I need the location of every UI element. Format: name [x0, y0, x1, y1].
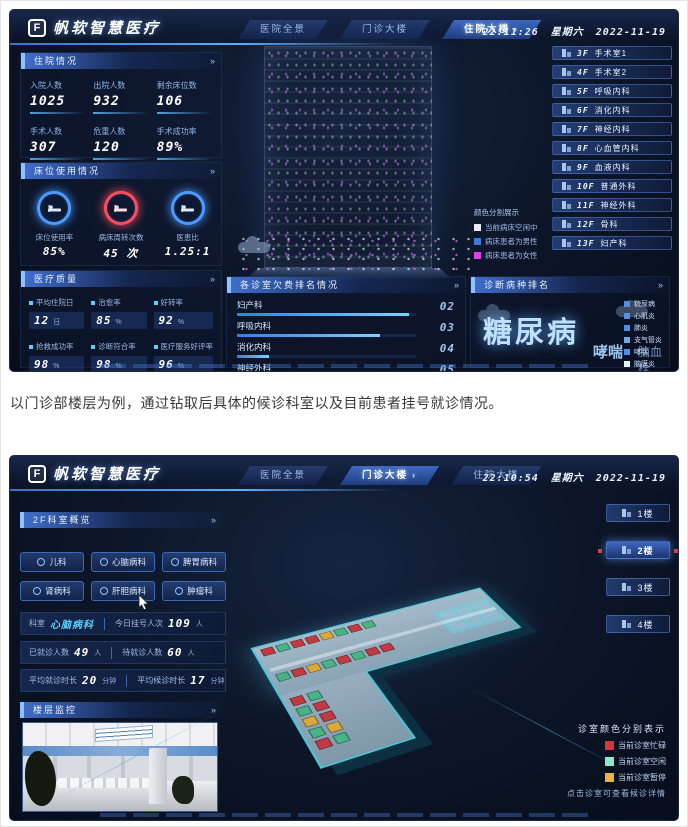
stat-label: 治愈率: [98, 297, 121, 308]
floor-button-11f[interactable]: 11F神经外科: [552, 198, 672, 212]
legend-label: 当前诊室忙碌: [618, 740, 666, 751]
floor-button-1[interactable]: 1楼: [606, 504, 670, 522]
stat-value: 17: [190, 674, 205, 687]
panel-title-text: 诊断病种排名: [484, 280, 550, 290]
legend-label: 心肌炎: [634, 311, 655, 321]
fanruan-logo-icon: F: [28, 19, 46, 37]
room-cell[interactable]: [290, 667, 307, 678]
stat-label: 平均就诊时长: [29, 675, 77, 686]
panel-title-text: 住院情况: [34, 56, 78, 66]
floor-num: 3F: [577, 49, 589, 58]
floor-map[interactable]: [252, 522, 582, 788]
stat-row-visits: 已就诊人数 49 人 待就诊人数 60 人: [20, 641, 226, 664]
rank-number: 03: [440, 321, 455, 334]
stat-card: 出院人数932: [93, 80, 148, 114]
gauge-label: 床位使用率: [21, 232, 87, 243]
dept-label: 呼吸内科: [237, 320, 455, 332]
legend-title: 颜色分割展示: [474, 207, 560, 218]
floor-name: 神经外科: [600, 200, 636, 211]
legend-swatch: [605, 773, 614, 782]
legend-swatch: [624, 301, 630, 307]
floor-plan-wing-main: [250, 587, 521, 697]
arrears-rows: 妇产科02 呼吸内科03 消化内科04 神经外科05: [227, 293, 465, 372]
floor-num: 6F: [577, 106, 589, 115]
dept-button-label: 肿瘤科: [187, 585, 213, 597]
floor-name: 消化内科: [595, 105, 631, 116]
building-icon: [562, 182, 571, 190]
room-grid: [289, 690, 351, 750]
stat-label: 剩余床位数: [157, 80, 212, 91]
dept-button-label: 心脑病科: [112, 556, 146, 568]
stat-value: 12: [34, 314, 49, 327]
panel-title: 各诊室欠费排名情况»: [227, 277, 465, 293]
panel-title: 医疗质量»: [21, 271, 221, 287]
legend-label: 当前病床空闲中: [485, 222, 538, 233]
legend-item: 病床患者为男性: [474, 236, 560, 247]
stat-value: 89%: [157, 140, 212, 155]
room-cell[interactable]: [319, 710, 337, 722]
panel-title-text: 2F科室概览: [33, 515, 92, 525]
arrears-row[interactable]: 妇产科02: [237, 299, 455, 318]
stat-value: 60: [167, 646, 182, 659]
dept-button-cardio-cerebral[interactable]: 心脑病科: [91, 552, 155, 572]
stat-unit: 人: [196, 619, 203, 629]
stat-value: 85: [96, 314, 111, 327]
legend-item: 糖尿病: [624, 299, 662, 309]
dept-label: 妇产科: [237, 299, 455, 311]
stat-unit: 分钟: [211, 676, 225, 686]
room-cell[interactable]: [361, 620, 377, 629]
quality-stat: 平均住院日12日: [29, 297, 84, 329]
floor-label: 4楼: [637, 618, 653, 631]
floor-name: 血液内科: [595, 162, 631, 173]
dept-icon: [33, 587, 41, 595]
dept-button-label: 肾病科: [45, 585, 71, 597]
dept-icon: [100, 558, 108, 566]
dept-icon: [171, 558, 179, 566]
floor-button-12f[interactable]: 12F骨科: [552, 217, 672, 231]
floor-button-9f[interactable]: 9F血液内科: [552, 160, 672, 174]
arrears-row[interactable]: 消化内科04: [237, 341, 455, 360]
room-cell[interactable]: [320, 659, 337, 669]
room-cell[interactable]: [260, 646, 276, 656]
legend-title: 诊室颜色分别表示: [542, 722, 666, 735]
building-icon: [562, 49, 571, 57]
room-cell[interactable]: [308, 726, 327, 739]
room-cell[interactable]: [275, 671, 292, 682]
legend-label: 病床患者为女性: [485, 250, 538, 261]
stat-label: 医疗服务好评率: [161, 341, 214, 352]
floor-button-2[interactable]: 2楼: [606, 541, 670, 559]
gauge-label: 病床周转次数: [88, 232, 154, 243]
building-crowd-dots: [236, 234, 474, 274]
divider: [126, 675, 127, 687]
legend-label: 病床患者为男性: [485, 236, 538, 247]
gauge-ring: [171, 191, 205, 225]
bullet-icon: [91, 345, 95, 349]
building-icon: [562, 220, 571, 228]
bed-icon: [114, 204, 127, 213]
tab-label: 门诊大楼: [362, 470, 408, 481]
floor-name: 呼吸内科: [595, 86, 631, 97]
stat-label: 好转率: [161, 297, 184, 308]
alert-dot: [598, 549, 602, 553]
rank-number: 04: [440, 342, 455, 355]
legend-label: 当前诊室空闲: [618, 756, 666, 767]
panel-arrow-icon: »: [454, 277, 459, 293]
room-cell[interactable]: [304, 635, 320, 645]
room-cell[interactable]: [379, 643, 396, 653]
bullet-icon: [154, 301, 158, 305]
legend-hint: 点击诊室可查看候诊详情: [542, 788, 666, 799]
legend-item: 哮喘: [624, 347, 662, 357]
gauge-ring: [104, 191, 138, 225]
legend-swatch: [624, 313, 630, 319]
stat-label: 诊断符合率: [98, 341, 136, 352]
building-icon: [562, 68, 571, 76]
department-buttons: 儿科 心脑病科 脾胃病科 肾病科 肝胆病科 肿瘤科: [20, 552, 226, 601]
stat-card: 手术人数307: [30, 126, 85, 160]
dept-button-pediatrics[interactable]: 儿科: [20, 552, 84, 572]
room-cell[interactable]: [289, 695, 307, 707]
stat-card: 剩余床位数106: [157, 80, 212, 114]
building-icon: [562, 144, 571, 152]
floor-button-3f[interactable]: 3F手术室1: [552, 46, 672, 60]
stat-card: 危重人数120: [93, 126, 148, 160]
divider: [104, 618, 105, 630]
room-cell[interactable]: [335, 655, 352, 665]
fanruan-logo-icon: F: [28, 465, 46, 483]
dept-button-nephrology[interactable]: 肾病科: [20, 581, 84, 601]
tab-outpatient-building[interactable]: 门诊大楼: [340, 20, 430, 39]
floor-monitor-video[interactable]: [22, 722, 218, 812]
app-title: 帆软智慧医疗: [53, 17, 161, 38]
app-logo: F 帆软智慧医疗: [28, 17, 161, 38]
stat-value: 92: [159, 314, 174, 327]
rank-bar: [237, 334, 416, 337]
panel-title: 住院情况»: [21, 53, 221, 69]
bed-icon: [181, 204, 194, 213]
panel-title-text: 楼层监控: [33, 705, 77, 715]
chevron-right-icon: ›: [412, 470, 417, 481]
legend-label: 支气管炎: [634, 335, 662, 345]
floor-name: 心血管内科: [595, 143, 640, 154]
disease-word-large[interactable]: 糖尿病: [483, 309, 579, 351]
panel-arrow-icon: »: [211, 512, 216, 528]
room-cell[interactable]: [290, 639, 306, 649]
floor-num: 8F: [577, 144, 589, 153]
stat-value: 109: [168, 617, 191, 630]
clock-date: 2022-11-19: [596, 473, 666, 484]
stat-value: 20: [82, 674, 97, 687]
floor-num: 9F: [577, 163, 589, 172]
alert-dot: [674, 549, 678, 553]
stat-unit: %: [178, 319, 184, 326]
cloud-icon: [238, 242, 270, 253]
legend-swatch: [624, 361, 630, 367]
floor-button-4[interactable]: 4楼: [606, 615, 670, 633]
panel-arrow-icon: »: [210, 53, 215, 69]
dept-icon: [100, 587, 108, 595]
stat-label: 今日挂号人次: [115, 618, 163, 629]
panel-inpatient-status: 住院情况» 入院人数1025 出院人数932 剩余床位数106 手术人数307 …: [20, 52, 222, 158]
building-icon: [622, 509, 631, 517]
legend-label: 糖尿病: [634, 299, 655, 309]
floor-name: 神经内科: [595, 124, 631, 135]
room-cell[interactable]: [325, 721, 343, 733]
bullet-icon: [29, 345, 33, 349]
stat-label: 已就诊人数: [29, 647, 69, 658]
legend-item: 病床患者为女性: [474, 250, 560, 261]
app-logo: F 帆软智慧医疗: [28, 463, 161, 484]
dept-button-label: 儿科: [49, 556, 66, 568]
gauge-value: 1.25:1: [155, 245, 221, 258]
stat-unit: %: [116, 319, 122, 326]
building-icon: [562, 201, 571, 209]
stat-cards: 入院人数1025 出院人数932 剩余床位数106 手术人数307 危重人数12…: [21, 69, 221, 160]
stat-label: 危重人数: [93, 126, 148, 137]
building-icon: [622, 620, 631, 628]
legend-item: 肺炎: [624, 323, 662, 333]
room-cell[interactable]: [275, 643, 291, 653]
floor-list: 3F手术室1 4F手术室2 5F呼吸内科 6F消化内科 7F神经内科 8F心血管…: [552, 46, 672, 250]
stat-row-dept: 科室 心脑病科 今日挂号人次 109 人: [20, 612, 226, 635]
gauge-label: 医患比: [155, 232, 221, 243]
panel-title: 床位使用情况»: [21, 163, 221, 179]
stat-unit: 分钟: [102, 676, 116, 686]
stat-label: 待就诊人数: [122, 647, 162, 658]
room-cell[interactable]: [314, 737, 333, 750]
stat-unit: 人: [188, 648, 195, 658]
clock-week: 星期六: [551, 23, 584, 38]
gauge-ring: [37, 191, 71, 225]
app-title: 帆软智慧医疗: [53, 463, 161, 484]
building-icon: [562, 163, 571, 171]
panel-medical-quality: 医疗质量» 平均住院日12日 治愈率85% 好转率92% 抢救成功率98% 诊断…: [20, 270, 222, 368]
dept-button-oncology[interactable]: 肿瘤科: [162, 581, 226, 601]
floor-button-7f[interactable]: 7F神经内科: [552, 122, 672, 136]
floor-num: 4F: [577, 68, 589, 77]
stat-label: 手术成功率: [157, 126, 212, 137]
tab-hospital-overview[interactable]: 医院全景: [238, 466, 328, 485]
quality-stat: 治愈率85%: [91, 297, 146, 329]
building-icon: [562, 125, 571, 133]
floor-name: 普通外科: [600, 181, 636, 192]
service-rooms-block: [434, 599, 506, 634]
building-icon: [562, 87, 571, 95]
dept-icon: [175, 587, 183, 595]
bullet-icon: [29, 301, 33, 305]
bed-color-legend: 颜色分割展示 当前病床空闲中 病床患者为男性 病床患者为女性: [474, 207, 560, 264]
panel-title-text: 医疗质量: [34, 274, 78, 284]
bullet-icon: [91, 301, 95, 305]
gauge-row: 床位使用率 85% 病床周转次数 45 次 医患比 1.25:1: [21, 179, 221, 261]
clock-week: 星期六: [551, 469, 584, 484]
stat-label: 手术人数: [30, 126, 85, 137]
stat-unit: 日: [53, 317, 60, 327]
stat-label: 抢救成功率: [36, 341, 74, 352]
legend-item: 脑膜炎: [624, 359, 662, 369]
floor-button-5f[interactable]: 5F呼吸内科: [552, 84, 672, 98]
floor-num: 12F: [577, 220, 594, 229]
dept-label: 消化内科: [237, 341, 455, 353]
building-icon: [562, 106, 571, 114]
stat-label: 出院人数: [93, 80, 148, 91]
selected-dept-value: 心脑病科: [50, 616, 94, 631]
floor-name: 妇产科: [600, 238, 627, 249]
panel-arrears-ranking: 各诊室欠费排名情况» 妇产科02 呼吸内科03 消化内科04 神经外科05: [226, 276, 466, 368]
legend-swatch: [624, 325, 630, 331]
legend-item: 当前诊室忙碌: [542, 740, 666, 751]
room-cell[interactable]: [312, 700, 330, 712]
panel-title-text: 各诊室欠费排名情况: [240, 280, 339, 290]
stat-value: 49: [74, 646, 89, 659]
tab-hospital-overview[interactable]: 医院全景: [238, 20, 328, 39]
legend-label: 当前诊室暂停: [618, 772, 666, 783]
legend-label: 脑膜炎: [634, 359, 655, 369]
floor-num: 7F: [577, 125, 589, 134]
legend-label: 哮喘: [634, 347, 648, 357]
stat-row-durations: 平均就诊时长 20 分钟 平均候诊时长 17 分钟: [20, 669, 226, 692]
stat-card: 入院人数1025: [30, 80, 85, 114]
stat-card: 手术成功率89%: [157, 126, 212, 160]
bottom-light-strip: [100, 364, 588, 368]
building-icon: [622, 583, 631, 591]
legend-label: 肺炎: [634, 323, 648, 333]
room-cell[interactable]: [347, 624, 363, 633]
panel-title-dept-overview: 2F科室概览»: [20, 512, 222, 528]
tab-outpatient-building[interactable]: 门诊大楼›: [340, 466, 439, 485]
legend-swatch: [474, 224, 481, 231]
floor-button-13f[interactable]: 13F妇产科: [552, 236, 672, 250]
room-cell[interactable]: [364, 647, 381, 657]
room-cell[interactable]: [332, 732, 351, 745]
room-cell[interactable]: [305, 663, 322, 673]
room-color-legend: 诊室颜色分别表示 当前诊室忙碌 当前诊室空闲 当前诊室暂停 点击诊室可查看候诊详…: [542, 722, 666, 799]
dashboard-outpatient-building: F 帆软智慧医疗 医院全景 门诊大楼› 住院大楼 22:10:54 星期六 20…: [9, 455, 679, 821]
legend-item: 脑血栓: [624, 371, 662, 372]
floor-button-6f[interactable]: 6F消化内科: [552, 103, 672, 117]
dept-button-spleen-stomach[interactable]: 脾胃病科: [162, 552, 226, 572]
stat-value: 98: [34, 358, 49, 371]
floor-label: 3楼: [637, 581, 653, 594]
gauge-value: 45 次: [88, 245, 154, 261]
floor-name: 手术室1: [595, 48, 627, 59]
room-cell[interactable]: [350, 651, 367, 661]
floor-label: 1楼: [637, 507, 653, 520]
legend-swatch: [605, 741, 614, 750]
rank-number: 02: [440, 300, 455, 313]
photo-plant-right: [172, 776, 193, 804]
clock: 22:11:26 星期六 2022-11-19: [483, 23, 666, 38]
panel-arrow-icon: »: [210, 271, 215, 287]
room-cell[interactable]: [333, 627, 349, 636]
dashboard-inpatient-building: F 帆软智慧医疗 医院全景 门诊大楼 住院大楼› 22:11:26 星期六 20…: [9, 9, 679, 372]
stat-unit: %: [53, 363, 59, 370]
legend-item: 当前病床空闲中: [474, 222, 560, 233]
bed-icon: [48, 204, 61, 213]
quality-stat: 抢救成功率98%: [29, 341, 84, 372]
clock: 22:10:54 星期六 2022-11-19: [483, 469, 666, 484]
clock-time: 22:11:26: [483, 27, 539, 38]
floor-plan: [250, 587, 580, 768]
building-icon: [562, 239, 571, 247]
room-cell[interactable]: [295, 705, 313, 717]
floor-num: 10F: [577, 182, 594, 191]
quality-stats: 平均住院日12日 治愈率85% 好转率92% 抢救成功率98% 诊断符合率98%…: [21, 287, 221, 372]
panel-title-text: 床位使用情况: [34, 166, 100, 176]
rank-bar: [237, 313, 416, 316]
panel-arrow-icon: »: [210, 163, 215, 179]
stat-value: 932: [93, 94, 148, 109]
stat-value: 120: [93, 140, 148, 155]
floor-name: 骨科: [600, 219, 618, 230]
panel-disease-ranking: 诊断病种排名» 糖尿病 哮喘 脑血栓 糖尿病 心肌炎 肺炎 支气管炎 哮喘 脑膜…: [470, 276, 670, 368]
rank-bar: [237, 355, 416, 358]
legend-item: 当前诊室暂停: [542, 772, 666, 783]
legend-label: 脑血栓: [634, 371, 655, 372]
stat-value: 307: [30, 140, 85, 155]
legend-swatch: [474, 252, 481, 259]
disease-word-medium[interactable]: 哮喘: [593, 341, 623, 362]
stat-label: 科室: [29, 618, 45, 629]
disease-legend: 糖尿病 心肌炎 肺炎 支气管炎 哮喘 脑膜炎 脑血栓: [624, 297, 662, 372]
stat-label: 平均候诊时长: [137, 675, 185, 686]
quality-stat: 好转率92%: [154, 297, 214, 329]
stat-label: 入院人数: [30, 80, 85, 91]
bullet-icon: [154, 345, 158, 349]
floor-name: 手术室2: [595, 67, 627, 78]
dept-icon: [37, 558, 45, 566]
panel-arrow-icon: »: [658, 277, 663, 293]
panel-title: 诊断病种排名»: [471, 277, 669, 293]
article-caption: 以门诊部楼层为例，通过钻取后具体的候诊科室以及目前患者挂号就诊情况。: [10, 393, 503, 413]
floor-button-3[interactable]: 3楼: [606, 578, 670, 596]
photo-pillar: [149, 748, 166, 804]
clock-time: 22:10:54: [483, 473, 539, 484]
panel-bed-usage: 床位使用情况» 床位使用率 85% 病床周转次数 45 次 医患比 1.25:1: [20, 162, 222, 266]
legend-item: 心肌炎: [624, 311, 662, 321]
arrears-row[interactable]: 呼吸内科03: [237, 320, 455, 339]
gauge-doctor-patient-ratio: 医患比 1.25:1: [155, 191, 221, 261]
room-cell[interactable]: [306, 690, 324, 701]
stat-value: 106: [157, 94, 212, 109]
mouse-cursor: [138, 594, 149, 610]
legend-swatch: [624, 337, 630, 343]
photo-signage-band: [23, 746, 217, 756]
legend-swatch: [624, 349, 630, 355]
dept-button-label: 脾胃病科: [183, 556, 217, 568]
legend-item: 支气管炎: [624, 335, 662, 345]
stat-value: 1025: [30, 94, 85, 109]
floor-button-8f[interactable]: 8F心血管内科: [552, 141, 672, 155]
panel-title-floor-monitor: 楼层监控»: [20, 702, 222, 718]
floor-num: 13F: [577, 239, 594, 248]
floor-label: 2楼: [637, 544, 653, 557]
gauge-value: 85%: [21, 245, 87, 258]
building-icon: [622, 546, 631, 554]
divider: [111, 647, 112, 659]
floor-button-10f[interactable]: 10F普通外科: [552, 179, 672, 193]
room-cell[interactable]: [319, 631, 335, 640]
room-cell[interactable]: [301, 715, 319, 727]
legend-swatch: [474, 238, 481, 245]
gauge-bed-usage-rate: 床位使用率 85%: [21, 191, 87, 261]
legend-item: 当前诊室空闲: [542, 756, 666, 767]
floor-button-4f[interactable]: 4F手术室2: [552, 65, 672, 79]
clock-date: 2022-11-19: [596, 27, 666, 38]
stat-label: 平均住院日: [36, 297, 74, 308]
